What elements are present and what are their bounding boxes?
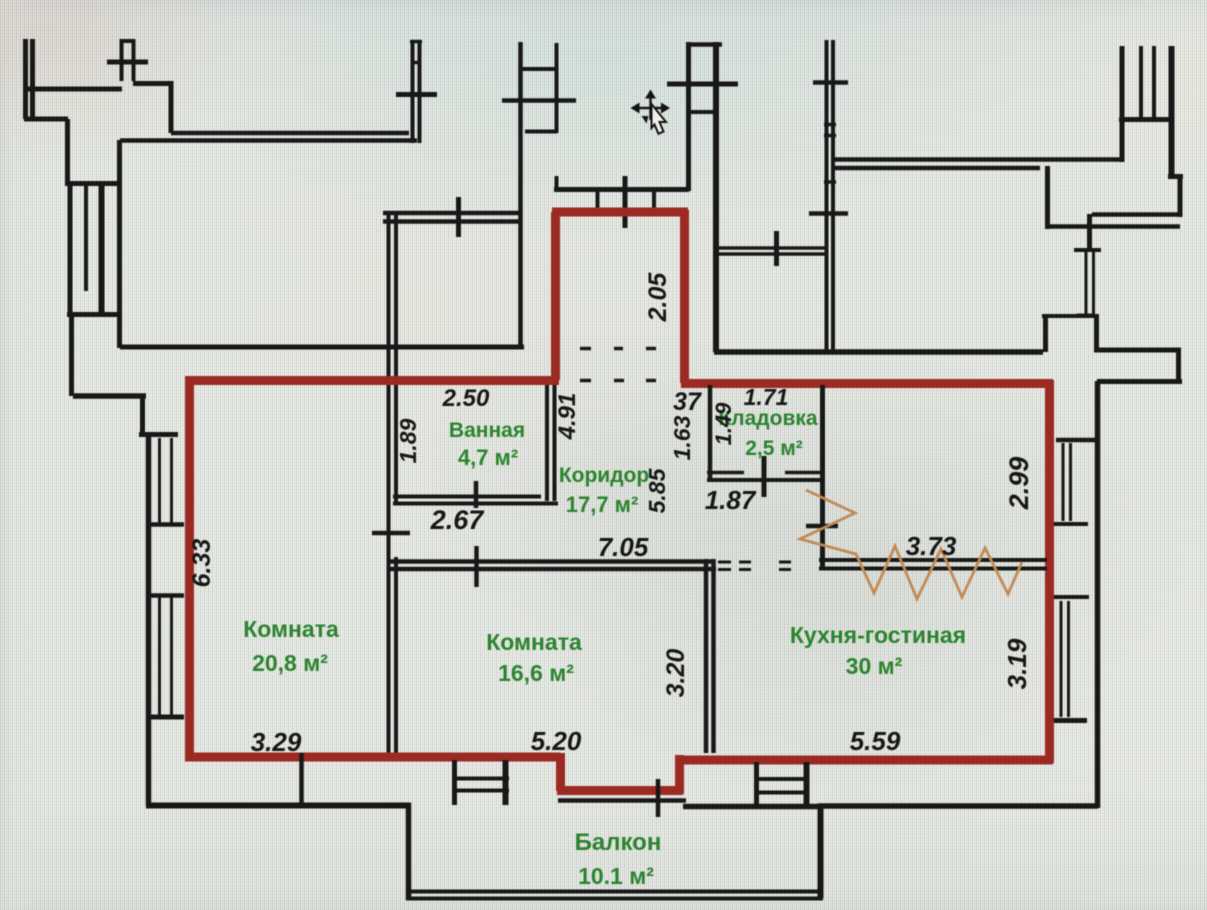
svg-text:Коридор: Коридор xyxy=(559,464,649,487)
svg-text:5.85: 5.85 xyxy=(644,467,670,513)
svg-text:1.71: 1.71 xyxy=(744,384,789,410)
svg-text:5.20: 5.20 xyxy=(531,726,582,756)
svg-text:37: 37 xyxy=(673,388,702,416)
svg-text:Комната: Комната xyxy=(486,629,582,655)
svg-text:2,5 м²: 2,5 м² xyxy=(745,437,803,460)
svg-text:2.99: 2.99 xyxy=(1004,457,1034,511)
svg-text:3.73: 3.73 xyxy=(906,531,957,561)
svg-text:2.67: 2.67 xyxy=(430,505,486,535)
svg-text:3.19: 3.19 xyxy=(1002,638,1032,689)
svg-text:Комната: Комната xyxy=(243,616,339,642)
svg-text:6.33: 6.33 xyxy=(188,539,216,588)
svg-text:2.50: 2.50 xyxy=(442,385,490,412)
svg-text:4,7 м²: 4,7 м² xyxy=(458,445,518,470)
svg-text:16,6 м²: 16,6 м² xyxy=(498,660,574,686)
svg-text:1.63: 1.63 xyxy=(669,415,695,460)
svg-text:10.1 м²: 10.1 м² xyxy=(578,863,654,889)
svg-text:Ванная: Ванная xyxy=(449,419,525,442)
svg-text:Балкон: Балкон xyxy=(575,829,662,856)
svg-text:4.91: 4.91 xyxy=(554,393,581,441)
svg-text:2.05: 2.05 xyxy=(644,272,672,323)
svg-text:5.59: 5.59 xyxy=(850,726,901,756)
svg-text:1.49: 1.49 xyxy=(711,402,736,446)
svg-text:7.05: 7.05 xyxy=(598,532,649,562)
svg-text:1.87: 1.87 xyxy=(705,485,757,515)
svg-text:3.29: 3.29 xyxy=(251,727,302,757)
svg-text:Кухня-гостиная: Кухня-гостиная xyxy=(790,622,966,648)
svg-text:30 м²: 30 м² xyxy=(846,653,903,679)
svg-text:1.89: 1.89 xyxy=(395,418,421,463)
svg-text:3.20: 3.20 xyxy=(662,649,690,698)
svg-text:17,7 м²: 17,7 м² xyxy=(566,492,639,517)
svg-text:20,8 м²: 20,8 м² xyxy=(252,650,328,676)
